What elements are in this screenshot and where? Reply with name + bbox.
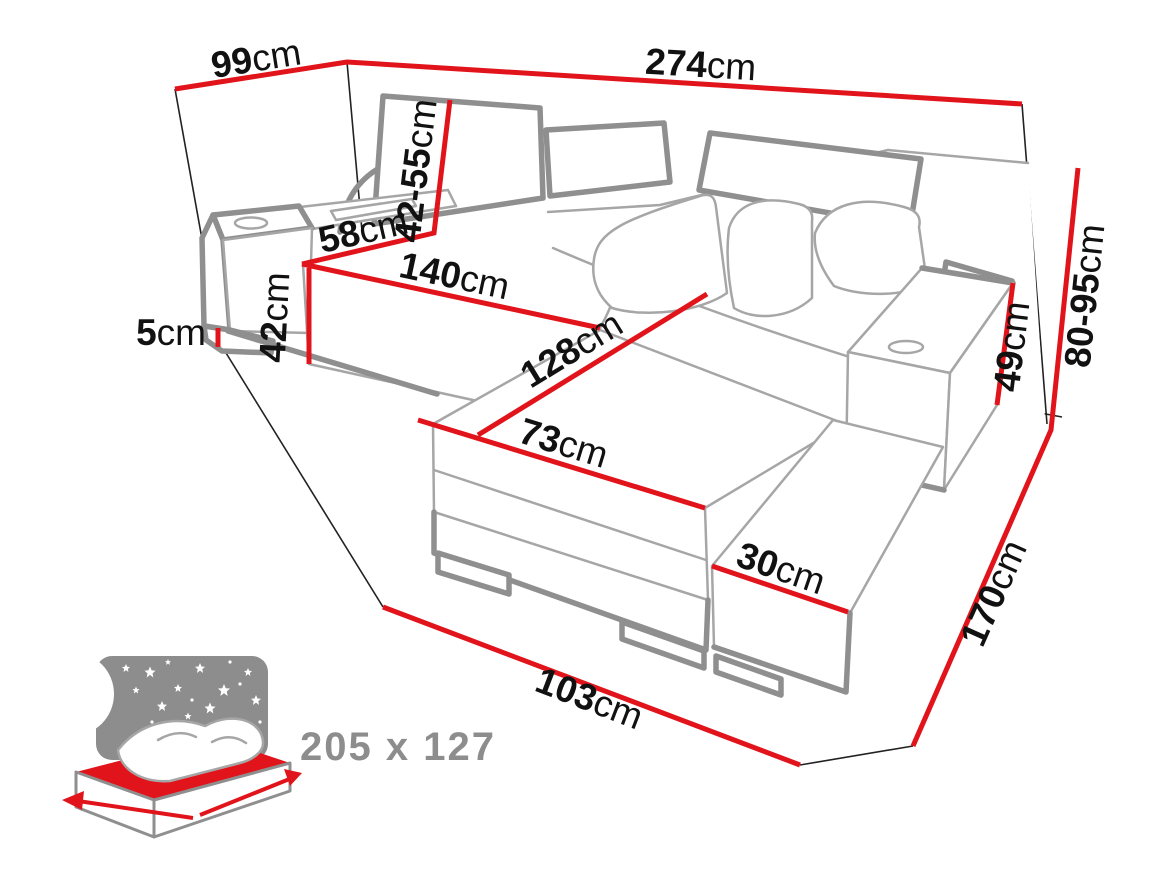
pillow-2 <box>728 200 813 316</box>
headrest-middle <box>546 123 670 196</box>
dim-label-42: 42cm <box>252 271 298 364</box>
sofa-dimension-diagram: 99cm 274cm 42-55cm 58cm 140cm 42cm 5cm 1… <box>0 0 1173 880</box>
arrow-width-head-icon <box>62 791 84 810</box>
moon-crescent-icon <box>30 652 114 736</box>
dim-label-80-95: 80-95cm <box>1057 222 1113 369</box>
cup-holder-right-icon <box>889 341 923 353</box>
dim-label-99: 99cm <box>208 31 304 86</box>
floor-left-edge <box>218 340 383 607</box>
dim-label-274: 274cm <box>644 41 757 89</box>
dim-label-170: 170cm <box>952 534 1035 652</box>
floor-right-edge <box>800 746 913 765</box>
diagram-canvas: 99cm 274cm 42-55cm 58cm 140cm 42cm 5cm 1… <box>0 0 1173 880</box>
sleeping-area-size-label: 205 x 127 <box>300 725 496 769</box>
chaise-leg-right <box>622 622 704 668</box>
cup-holder-left-icon <box>235 218 267 229</box>
dim-label-5: 5cm <box>136 312 206 353</box>
dim-label-103: 103cm <box>530 659 648 737</box>
sofa-drawing <box>202 96 1045 695</box>
sleeping-function-icon: 205 x 127 <box>30 652 496 837</box>
chaise-leg-left <box>438 553 509 594</box>
